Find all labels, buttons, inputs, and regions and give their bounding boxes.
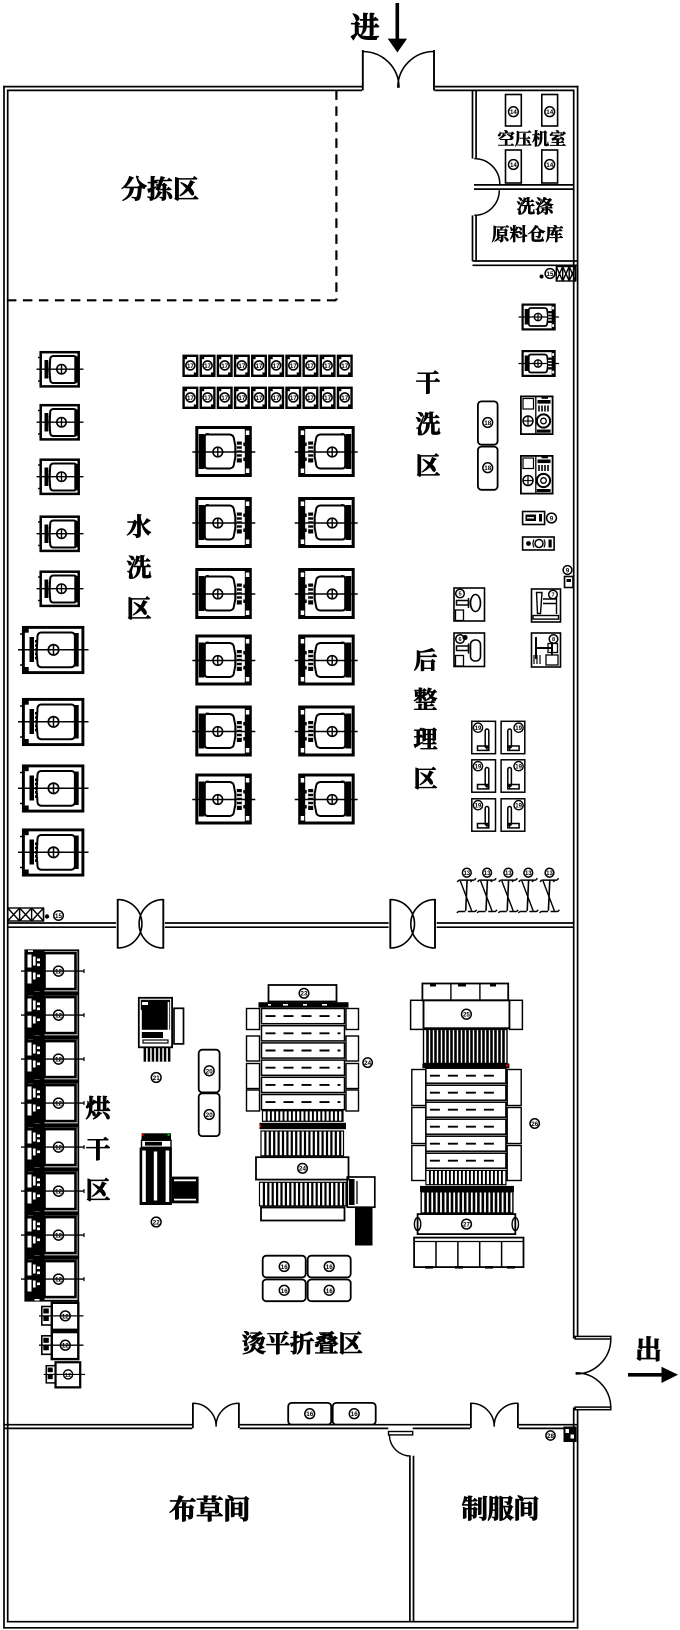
svg-text:26: 26	[531, 1121, 538, 1128]
svg-text:15: 15	[547, 271, 554, 278]
svg-text:14: 14	[546, 162, 553, 169]
svg-text:14: 14	[510, 162, 517, 169]
svg-text:14: 14	[546, 109, 553, 116]
svg-text:7: 7	[551, 593, 554, 599]
svg-text:25: 25	[463, 1012, 470, 1019]
svg-text:15: 15	[55, 913, 62, 920]
svg-text:21: 21	[153, 1075, 160, 1082]
svg-text:9: 9	[550, 515, 554, 522]
svg-text:22: 22	[153, 1219, 160, 1226]
svg-text:24: 24	[364, 1060, 371, 1067]
svg-text:27: 27	[463, 1221, 470, 1228]
svg-text:23: 23	[301, 991, 308, 998]
svg-text:5: 5	[458, 592, 461, 598]
svg-text:6: 6	[458, 637, 461, 643]
svg-text:28: 28	[547, 1433, 554, 1440]
svg-text:24: 24	[299, 1166, 306, 1173]
svg-text:9: 9	[566, 567, 570, 574]
svg-text:14: 14	[510, 109, 517, 116]
